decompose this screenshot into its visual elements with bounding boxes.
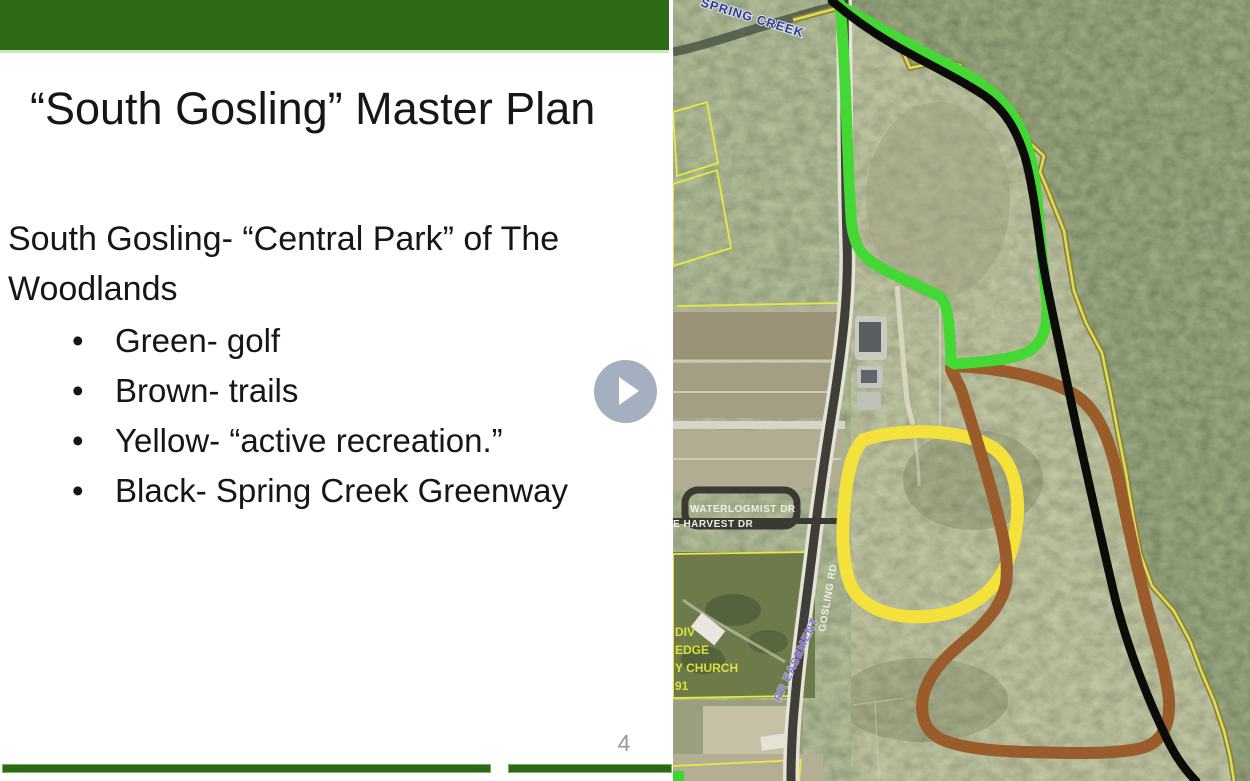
green-marker <box>673 771 684 781</box>
play-button[interactable] <box>594 360 657 423</box>
body-line-1: South Gosling- “Central Park” of The <box>8 220 559 258</box>
svg-text:Y CHURCH: Y CHURCH <box>675 661 738 675</box>
svg-text:DIV: DIV <box>675 625 695 639</box>
body-line-2: Woodlands <box>8 270 178 308</box>
svg-text:EDGE: EDGE <box>675 643 709 657</box>
slide-title: “South Gosling” Master Plan <box>30 84 595 134</box>
slide-body-text: South Gosling- “Central Park” of TheWood… <box>8 214 559 314</box>
bullet-item-green: Green- golf <box>0 316 568 366</box>
screen: “South Gosling” Master Plan South Goslin… <box>0 0 1250 781</box>
bullet-list: Green- golf Brown- trails Yellow- “activ… <box>0 316 568 516</box>
play-icon <box>619 377 639 405</box>
label-waterlogmist-dr: WATERLOGMIST DR <box>690 504 796 515</box>
bullet-item-brown: Brown- trails <box>0 366 568 416</box>
slide-top-accent-bar <box>0 0 669 53</box>
page-number: 4 <box>608 730 640 757</box>
label-harvest-dr: E HARVEST DR <box>673 519 754 530</box>
aerial-map: SPRING CREEK WATERLOGMIST DR E HARVEST D… <box>673 0 1250 781</box>
slide: “South Gosling” Master Plan South Goslin… <box>0 0 673 781</box>
slide-bottom-accent-bar-right <box>508 764 672 773</box>
bullet-item-black: Black- Spring Creek Greenway <box>0 466 568 516</box>
svg-text:91: 91 <box>675 679 689 693</box>
slide-bottom-accent-bar-left <box>2 764 491 773</box>
bullet-item-yellow: Yellow- “active recreation.” <box>0 416 568 466</box>
